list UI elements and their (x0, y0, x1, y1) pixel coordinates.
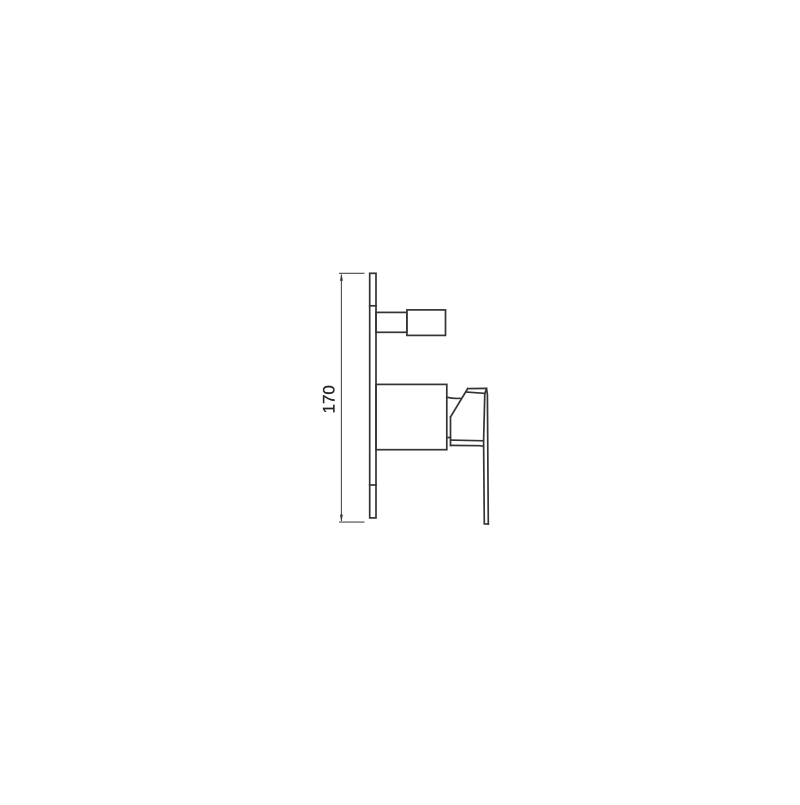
svg-text:170: 170 (320, 385, 339, 413)
